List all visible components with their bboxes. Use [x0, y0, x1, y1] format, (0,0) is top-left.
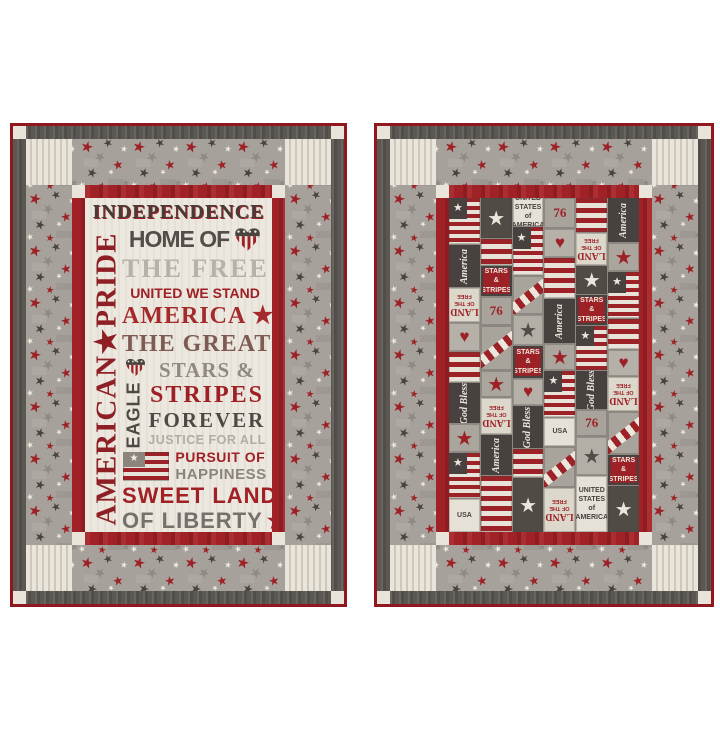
ticking-corner-block: [285, 139, 331, 185]
patch-ribbon: [513, 276, 544, 314]
patch-ribbon: [608, 412, 639, 454]
patch-stripesH: [544, 258, 575, 298]
patch-heart: ♥: [544, 229, 575, 257]
patch-land: LANDOF THE FREE: [608, 377, 639, 411]
patch-starWhite: ★: [513, 478, 544, 532]
product-image: INDEPENDENCE AMERICAN★PRIDE HOME OF THE …: [0, 0, 720, 735]
patch-txtRed: STARS & STRIPES: [608, 455, 639, 485]
patch-starWhite: ★: [481, 198, 512, 238]
patch-six: 76: [481, 297, 512, 325]
ticking-corner-block: [26, 545, 72, 591]
patch-script: God Bless: [513, 406, 544, 448]
patch-heart: ♥: [513, 379, 544, 405]
patch-starRed: ★: [608, 243, 639, 271]
cream-corner-square: [698, 591, 711, 604]
cream-corner-square: [13, 126, 26, 139]
cream-corner-square: [331, 591, 344, 604]
cream-cornerstone: [436, 185, 449, 198]
vertical-eagle: EAGLE: [124, 380, 144, 450]
patch-flag: ★: [513, 227, 544, 275]
cream-cornerstone: [72, 185, 85, 198]
patch-starWhite: ★: [576, 266, 607, 294]
heart-flag-icon: [125, 358, 146, 377]
patch-column: America★★♥LANDOF THE FREESTARS & STRIPES…: [608, 198, 639, 532]
patch-land: LANDOF THE FREE: [449, 288, 480, 322]
quilt-patchwork: ★AmericaLANDOF THE FREE♥God Bless★★USA★S…: [374, 123, 714, 607]
flag-icon: ★: [123, 452, 169, 481]
patchwork-panel: ★AmericaLANDOF THE FREE♥God Bless★★USA★S…: [449, 198, 639, 532]
text-independence: INDEPENDENCE: [89, 200, 268, 224]
patch-script: America: [449, 245, 480, 287]
patch-txtCream: USA: [449, 499, 480, 532]
patch-script: America: [608, 198, 639, 242]
cream-corner-square: [13, 591, 26, 604]
charcoal-border: INDEPENDENCE AMERICAN★PRIDE HOME OF THE …: [13, 126, 344, 604]
patch-starGray: ★: [576, 437, 607, 475]
patch-land: LANDOF THE FREE: [576, 233, 607, 265]
cream-cornerstone: [436, 532, 449, 545]
patch-starRed: ★: [449, 424, 480, 452]
ticking-corner-block: [652, 139, 698, 185]
patch-flag: ★: [544, 371, 575, 417]
patch-land: LANDOF THE FREE: [481, 398, 512, 434]
eagle-text: EAGLE: [124, 381, 145, 448]
patch-stripesH: [576, 198, 607, 232]
cream-corner-square: [377, 591, 390, 604]
cream-cornerstone: [72, 532, 85, 545]
text-home-of: HOME OF: [129, 224, 229, 254]
subway-art-panel: INDEPENDENCE AMERICAN★PRIDE HOME OF THE …: [85, 198, 272, 532]
ticking-corner-block: [285, 545, 331, 591]
patch-starGray: ★: [513, 315, 544, 345]
quilt-word-panel: INDEPENDENCE AMERICAN★PRIDE HOME OF THE …: [10, 123, 347, 607]
ticking-corner-block: [652, 545, 698, 591]
patch-flag: ★: [449, 198, 480, 244]
patch-txtRed: STARS & STRIPES: [481, 266, 512, 296]
text-home-of-row: HOME OF: [122, 224, 268, 254]
patch-heart: ♥: [608, 350, 639, 376]
patch-script: America: [481, 435, 512, 475]
cream-cornerstone: [639, 532, 652, 545]
vertical-american-pride: AMERICAN★PRIDE: [89, 224, 122, 532]
patch-starRed: ★: [544, 344, 575, 370]
cream-cornerstone: [272, 185, 285, 198]
patch-stripesH: [608, 319, 639, 349]
patch-flag: ★: [576, 326, 607, 370]
text-pursuit-of: PURSUIT OF: [175, 449, 265, 466]
patch-txtCream: UNITED STATES of AMERICA: [576, 476, 607, 532]
patch-column: 76♥America★★USALANDOF THE FREE: [544, 198, 575, 532]
text-america: AMERICA ★: [122, 302, 268, 330]
ticking-corner-block: [390, 139, 436, 185]
center-panel: ★AmericaLANDOF THE FREE♥God Bless★★USA★S…: [449, 198, 639, 532]
heart-flag-icon: [234, 227, 261, 252]
cream-corner-square: [377, 126, 390, 139]
patch-stripesH: [449, 352, 480, 382]
patch-ribbon: [544, 447, 575, 487]
flag-star: ★: [123, 452, 144, 467]
text-justice-for-all: JUSTICE FOR ALL: [146, 432, 268, 448]
cream-corner-square: [331, 126, 344, 139]
cream-corner-square: [698, 126, 711, 139]
ticking-corner-block: [26, 139, 72, 185]
patch-six: 76: [576, 410, 607, 436]
patch-column: LANDOF THE FREE★STARS & STRIPES★God Bles…: [576, 198, 607, 532]
eagle-section: EAGLE STARS & STRIPES FOREVER JUSTICE FO…: [122, 358, 268, 448]
patch-txtCream: USA: [544, 418, 575, 446]
patch-starWhite: ★: [608, 486, 639, 532]
text-sweet-land: SWEET LAND: [122, 484, 268, 508]
patch-script: America: [544, 299, 575, 343]
patch-txtRed: STARS & STRIPES: [576, 295, 607, 325]
patch-stripesH: [513, 449, 544, 477]
patch-ribbon: [481, 326, 512, 370]
center-panel: INDEPENDENCE AMERICAN★PRIDE HOME OF THE …: [85, 198, 272, 532]
patch-land: LANDOF THE FREE: [544, 488, 575, 532]
ticking-corner-block: [390, 545, 436, 591]
patch-script: God Bless: [576, 371, 607, 409]
patch-column: ★AmericaLANDOF THE FREE♥God Bless★★USA: [449, 198, 480, 532]
patch-stripesH: [481, 239, 512, 265]
text-happiness: HAPPINESS: [175, 466, 266, 484]
text-the-free: THE FREE: [122, 254, 268, 284]
patch-flag: ★: [608, 272, 639, 318]
american-pride-text: AMERICAN★PRIDE: [88, 232, 123, 525]
pursuit-row: ★ PURSUIT OF HAPPINESS: [122, 448, 268, 484]
patch-heart: ♥: [449, 323, 480, 351]
text-stripes: STRIPES: [146, 382, 268, 408]
text-forever: FOREVER: [146, 408, 268, 432]
patch-starRed: ★: [481, 371, 512, 397]
charcoal-border: ★AmericaLANDOF THE FREE♥God Bless★★USA★S…: [377, 126, 711, 604]
patch-script: God Bless: [449, 383, 480, 423]
patch-flag: ★: [449, 453, 480, 498]
patch-txtCream: UNITED STATES of AMERICA: [513, 198, 544, 226]
text-of-liberty: OF LIBERTY★: [122, 508, 268, 532]
patch-stripesH: [481, 476, 512, 532]
cream-cornerstone: [272, 532, 285, 545]
cream-cornerstone: [639, 185, 652, 198]
red-star: ★: [267, 508, 272, 532]
patch-six: 76: [544, 198, 575, 228]
text-stars-and: STARS &: [146, 358, 268, 382]
text-united-we-stand: UNITED WE STAND: [122, 284, 268, 302]
patch-txtRed: STARS & STRIPES: [513, 346, 544, 378]
patch-column: UNITED STATES of AMERICA★★STARS & STRIPE…: [513, 198, 544, 532]
patch-column: ★STARS & STRIPES76★LANDOF THE FREEAmeric…: [481, 198, 512, 532]
text-the-great: THE GREAT: [122, 330, 268, 358]
